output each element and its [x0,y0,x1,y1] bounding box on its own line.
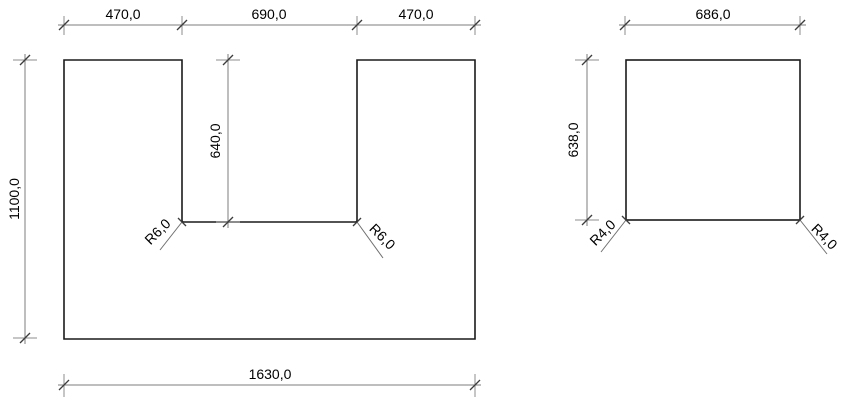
dim-left-overall-width: 1630,0 [58,366,481,397]
dim-left-overall-height: 1100,0 [6,54,37,344]
technical-drawing: 470,0 690,0 470,0 1100,0 640,0 R6,0 [0,0,864,419]
dim-label-right-width: 686,0 [695,6,730,22]
u-shaped-part-outline [64,60,475,339]
dim-label-notch-depth: 640,0 [207,123,223,158]
dim-label-overall-width: 1630,0 [249,366,292,382]
drawing-canvas: 470,0 690,0 470,0 1100,0 640,0 R6,0 [0,0,864,419]
dim-notch-depth: 640,0 [207,54,240,228]
dim-label-top-middle: 690,0 [251,6,286,22]
dim-label-overall-height: 1100,0 [6,178,22,220]
dim-left-top-widths: 470,0 690,0 470,0 [58,6,481,35]
radius-label-rect-left: R4,0 [586,216,618,248]
radius-callout-notch-left: R6,0 [141,215,186,250]
radius-callout-notch-right: R6,0 [353,218,399,258]
dim-right-width: 686,0 [619,6,806,35]
dim-label-top-left: 470,0 [105,6,140,22]
dim-label-right-height: 638,0 [565,122,581,157]
dim-right-height: 638,0 [565,54,599,226]
radius-callout-rect-right: R4,0 [796,216,841,254]
dim-label-top-right: 470,0 [398,6,433,22]
radius-label-notch-right: R6,0 [366,220,398,252]
radius-label-notch-left: R6,0 [141,215,173,247]
rectangular-part-outline [626,60,800,220]
radius-callout-rect-left: R4,0 [586,216,630,252]
